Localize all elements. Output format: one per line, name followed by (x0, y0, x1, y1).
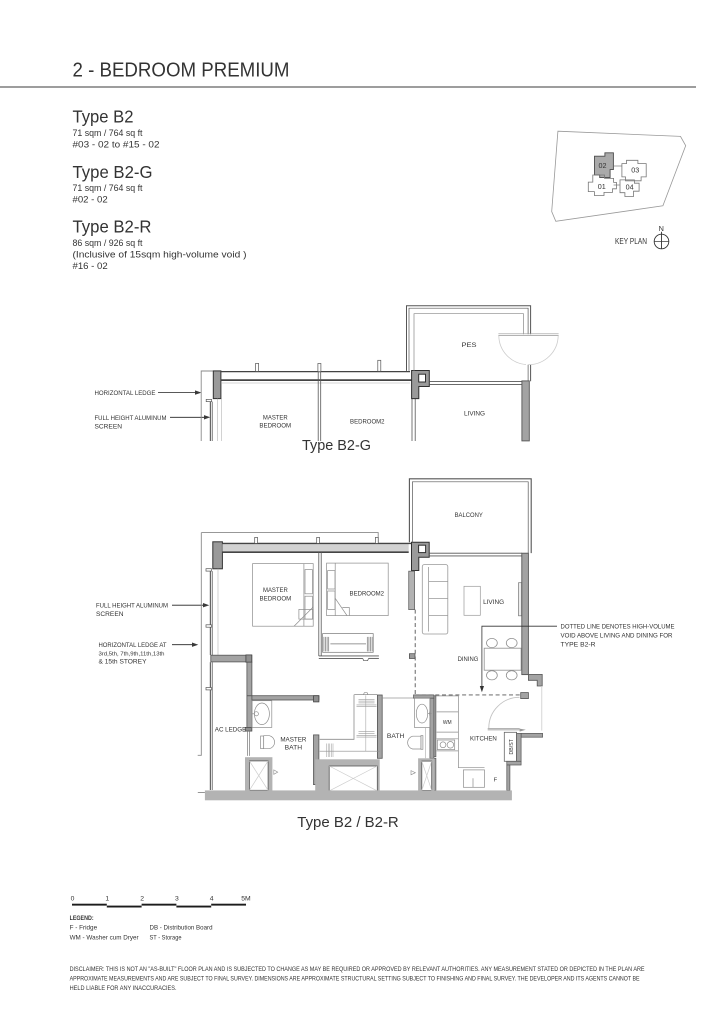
svg-text:DB/ST: DB/ST (509, 738, 515, 754)
svg-text:AC LEDGE: AC LEDGE (215, 727, 247, 734)
svg-text:SCREEN: SCREEN (96, 611, 124, 618)
svg-text:Type B2-G: Type B2-G (73, 162, 153, 182)
svg-text:ST - Storage: ST - Storage (150, 935, 182, 942)
svg-text:DOTTED LINE DENOTES HIGH-VOLUM: DOTTED LINE DENOTES HIGH-VOLUME (561, 624, 675, 631)
svg-text:#02 - 02: #02 - 02 (73, 195, 108, 206)
svg-text:4: 4 (210, 896, 214, 903)
svg-text:LIVING: LIVING (464, 411, 485, 418)
svg-text:HORIZONTAL LEDGE: HORIZONTAL LEDGE (95, 390, 157, 397)
svg-text:APPROXIMATE MEASUREMENTS AND A: APPROXIMATE MEASUREMENTS AND ARE SUBJECT… (70, 975, 640, 982)
svg-text:3rd,5th, 7th,9th,11th,13th: 3rd,5th, 7th,9th,11th,13th (99, 652, 165, 658)
svg-text:#03 - 02 to #15 - 02: #03 - 02 to #15 - 02 (73, 140, 160, 151)
svg-text:HORIZONTAL LEDGE AT: HORIZONTAL LEDGE AT (99, 642, 167, 649)
svg-text:LEGEND:: LEGEND: (70, 915, 94, 922)
svg-text:3: 3 (175, 896, 179, 903)
svg-text:2 - BEDROOM PREMIUM: 2 - BEDROOM PREMIUM (73, 59, 290, 82)
svg-text:WM: WM (443, 720, 452, 726)
svg-text:N: N (659, 224, 664, 233)
svg-text:2: 2 (140, 896, 144, 903)
svg-text:BATH: BATH (387, 733, 405, 740)
svg-text:KITCHEN: KITCHEN (470, 735, 497, 742)
svg-text:BEDROOM2: BEDROOM2 (350, 418, 385, 425)
svg-text:BALCONY: BALCONY (455, 512, 484, 519)
svg-text:FULL HEIGHT ALUMINUM: FULL HEIGHT ALUMINUM (96, 603, 168, 610)
svg-text:5M: 5M (241, 896, 251, 903)
svg-text:86 sqm / 926 sq ft: 86 sqm / 926 sq ft (73, 238, 143, 249)
svg-text:Type B2-R: Type B2-R (73, 217, 152, 237)
svg-text:& 15th STOREY: & 15th STOREY (99, 659, 148, 666)
svg-text:1: 1 (105, 896, 109, 903)
svg-text:0: 0 (71, 896, 75, 903)
svg-text:DB - Distribution Board: DB - Distribution Board (150, 925, 213, 932)
svg-text:SCREEN: SCREEN (95, 424, 123, 431)
svg-text:VOID ABOVE LIVING AND DINING F: VOID ABOVE LIVING AND DINING FOR (561, 633, 673, 640)
svg-text:71 sqm / 764 sq ft: 71 sqm / 764 sq ft (73, 128, 143, 139)
svg-text:(Inclusive of 15sqm high-volum: (Inclusive of 15sqm high-volume void ) (73, 250, 247, 261)
svg-text:LIVING: LIVING (483, 599, 504, 606)
svg-text:TYPE B2-R: TYPE B2-R (561, 642, 596, 649)
svg-text:FULL HEIGHT ALUMINUM: FULL HEIGHT ALUMINUM (95, 415, 167, 422)
svg-text:MASTER: MASTER (263, 415, 288, 422)
svg-text:F: F (494, 777, 498, 783)
svg-text:04: 04 (626, 182, 634, 191)
svg-text:#16 - 02: #16 - 02 (73, 261, 108, 272)
svg-text:01: 01 (598, 182, 606, 191)
svg-text:71 sqm / 764 sq ft: 71 sqm / 764 sq ft (73, 183, 143, 194)
svg-text:Type B2: Type B2 (73, 107, 134, 127)
svg-text:WM - Washer cum Dryer: WM - Washer cum Dryer (70, 935, 140, 942)
svg-text:PES: PES (462, 342, 477, 349)
svg-text:02: 02 (599, 161, 607, 170)
svg-text:BEDROOM2: BEDROOM2 (350, 590, 385, 597)
svg-text:MASTER: MASTER (263, 587, 288, 594)
svg-text:Type B2-G: Type B2-G (302, 437, 371, 454)
svg-text:F - Fridge: F - Fridge (70, 925, 98, 932)
svg-text:03: 03 (631, 165, 639, 174)
svg-text:BEDROOM: BEDROOM (259, 423, 291, 430)
svg-text:DINING: DINING (458, 656, 479, 663)
svg-text:HELD LIABLE FOR ANY INACCURACI: HELD LIABLE FOR ANY INACCURACIES. (70, 985, 177, 992)
svg-text:DISCLAIMER: THIS IS NOT AN "AS: DISCLAIMER: THIS IS NOT AN "AS-BUILT" FL… (70, 966, 645, 973)
svg-text:Type B2 / B2-R: Type B2 / B2-R (297, 814, 399, 831)
svg-text:BEDROOM: BEDROOM (260, 595, 292, 602)
svg-text:MASTER: MASTER (280, 737, 307, 744)
svg-text:KEY PLAN: KEY PLAN (615, 236, 647, 246)
svg-text:BATH: BATH (285, 744, 303, 751)
